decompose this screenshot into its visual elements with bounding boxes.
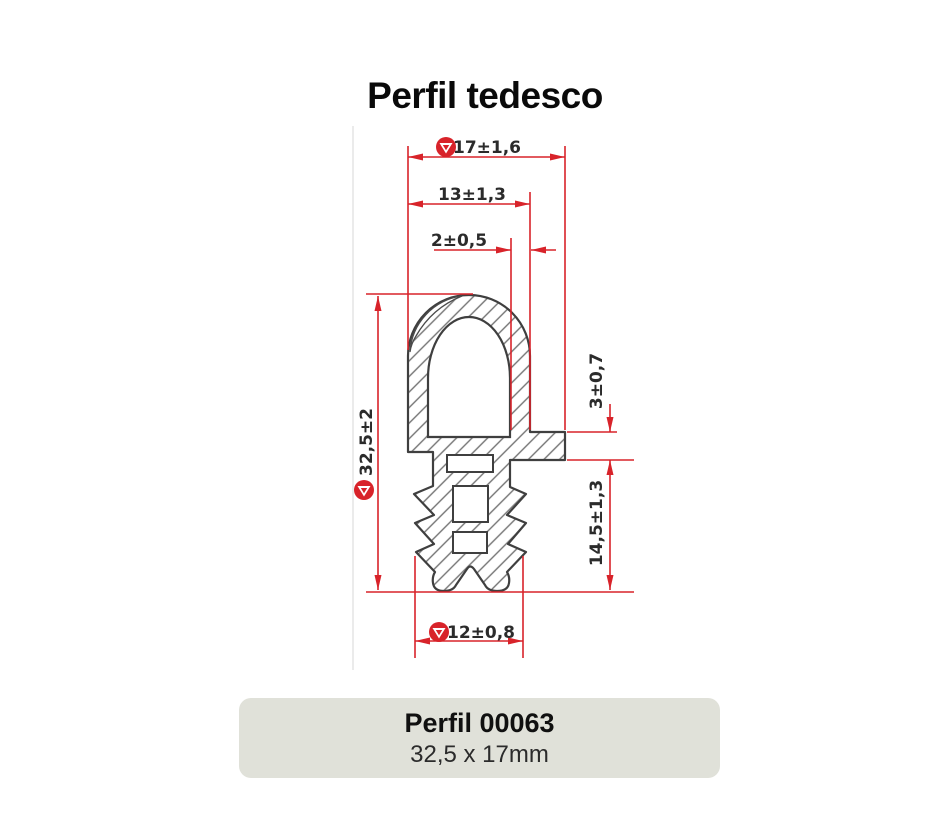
dim-base-width-label: 12±0,8	[447, 623, 515, 643]
product-card-subtitle: 32,5 x 17mm	[410, 741, 549, 769]
technical-drawing: 17±1,6 13±1,3 2±0,5 32,5±2 3±0,7 14,5±1,…	[340, 118, 660, 682]
page-title: Perfil tedesco	[0, 75, 944, 117]
product-card: Perfil 00063 32,5 x 17mm	[239, 698, 720, 778]
product-card-title: Perfil 00063	[404, 708, 554, 739]
dim-base-height-label: 14,5±1,3	[587, 480, 607, 566]
profile-outline	[408, 295, 565, 591]
dim-head-width-label: 13±1,3	[438, 185, 506, 205]
dim-total-height-label: 32,5±2	[357, 408, 377, 476]
dim-top-width-label: 17±1,6	[453, 138, 521, 158]
dim-flange-thickness-label: 3±0,7	[587, 353, 607, 409]
profile-drawing-svg: 17±1,6 13±1,3 2±0,5 32,5±2 3±0,7 14,5±1,…	[340, 118, 660, 682]
dim-wall-thickness-label: 2±0,5	[431, 231, 487, 251]
inspection-symbol-icon	[354, 480, 374, 500]
